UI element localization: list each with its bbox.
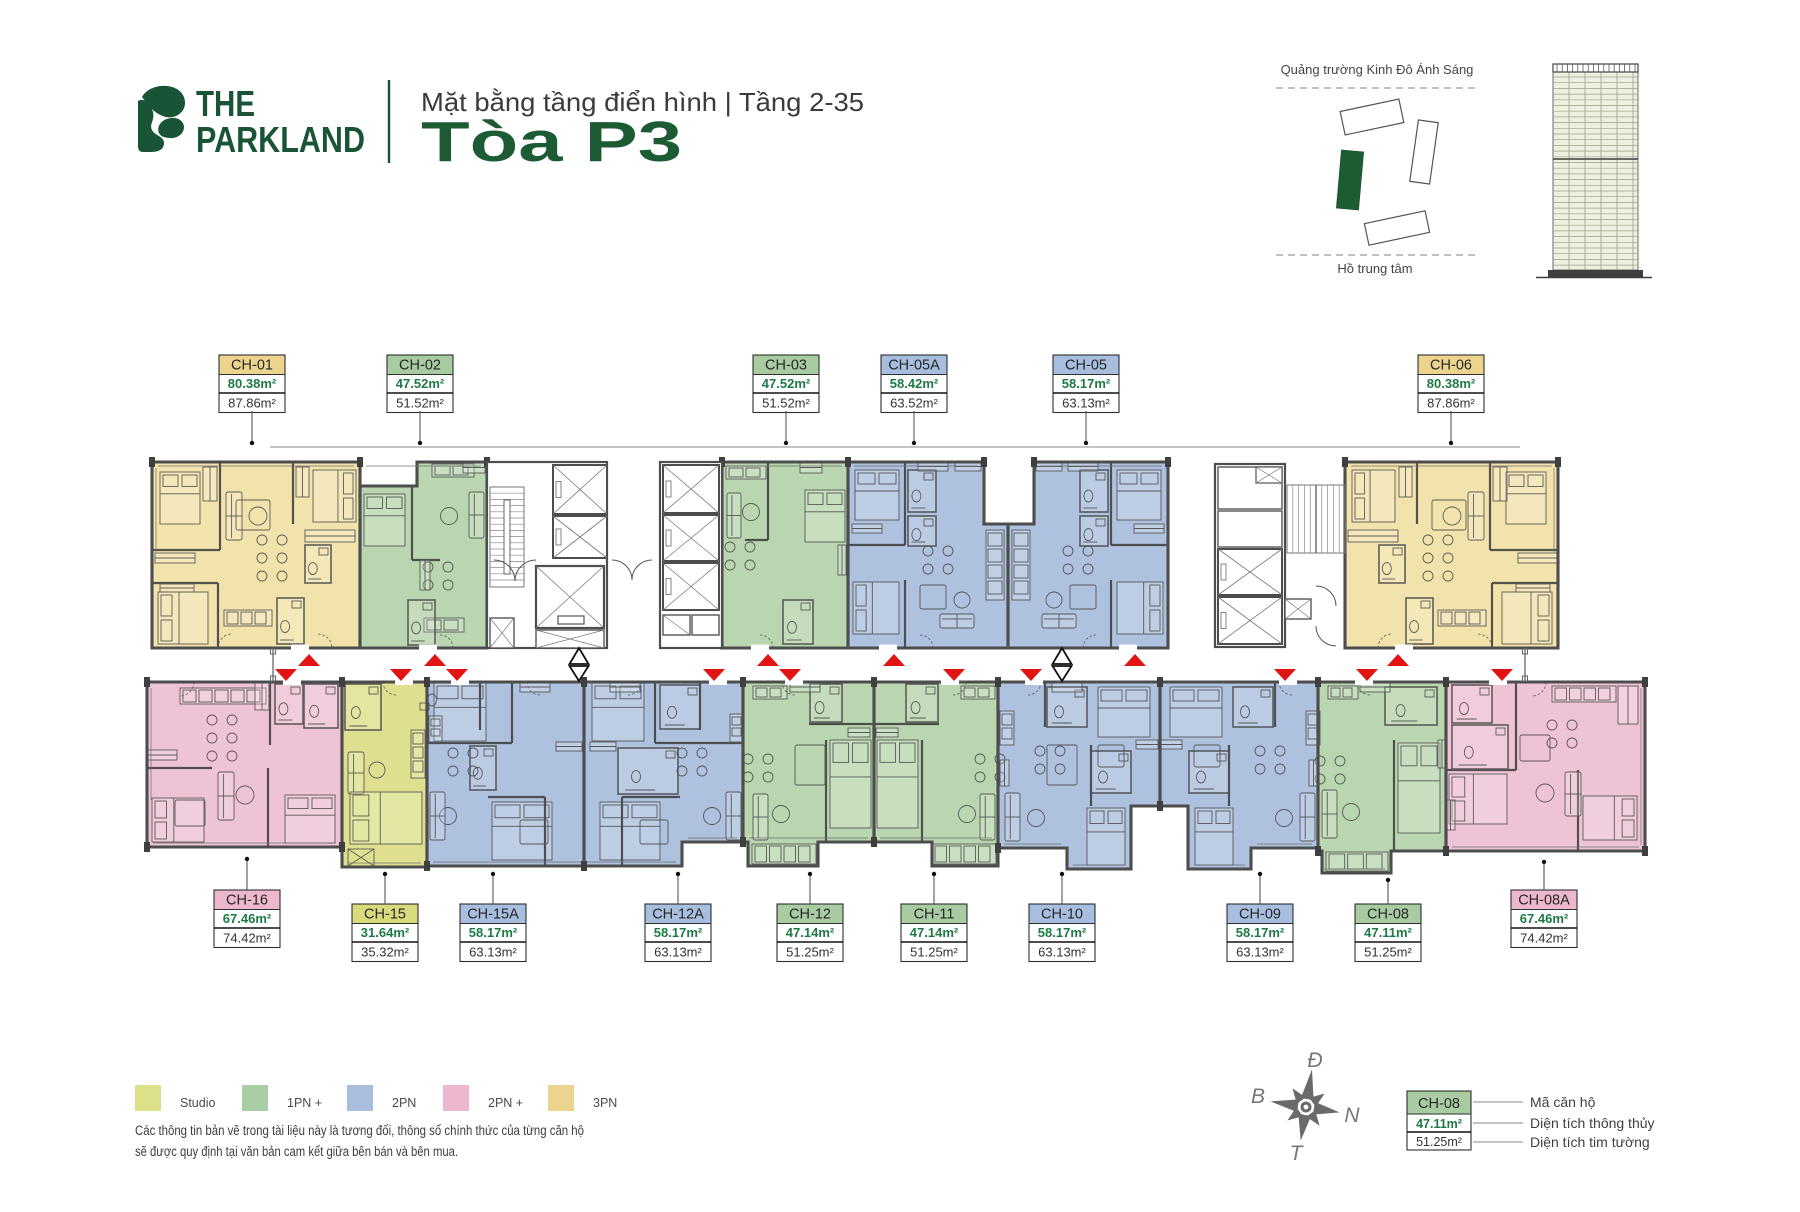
svg-text:CH-16: CH-16 (226, 892, 268, 908)
svg-text:31.64m²: 31.64m² (361, 925, 410, 940)
svg-text:87.86m²: 87.86m² (1427, 395, 1475, 410)
svg-text:Diện tích thông thủy: Diện tích thông thủy (1530, 1115, 1655, 1131)
svg-text:47.11m²: 47.11m² (1364, 925, 1412, 940)
svg-text:51.25m²: 51.25m² (786, 944, 834, 959)
svg-text:51.25m²: 51.25m² (910, 944, 958, 959)
svg-text:CH-11: CH-11 (914, 906, 955, 922)
svg-text:58.42m²: 58.42m² (890, 376, 939, 391)
svg-text:51.52m²: 51.52m² (762, 395, 810, 410)
svg-text:80.38m²: 80.38m² (1427, 376, 1476, 391)
svg-text:47.14m²: 47.14m² (910, 925, 959, 940)
svg-text:74.42m²: 74.42m² (223, 930, 271, 945)
svg-text:CH-01: CH-01 (231, 357, 273, 373)
svg-text:58.17m²: 58.17m² (654, 925, 703, 940)
svg-text:B: B (1251, 1085, 1265, 1108)
svg-text:Diện tích tim tường: Diện tích tim tường (1530, 1134, 1650, 1150)
svg-text:N: N (1344, 1104, 1360, 1127)
svg-text:CH-12: CH-12 (789, 906, 831, 922)
svg-text:2PN: 2PN (392, 1096, 416, 1110)
svg-text:58.17m²: 58.17m² (1236, 925, 1285, 940)
svg-text:CH-08: CH-08 (1418, 1096, 1460, 1112)
svg-text:Mã căn hộ: Mã căn hộ (1530, 1094, 1596, 1110)
svg-text:T: T (1290, 1142, 1305, 1165)
svg-text:74.42m²: 74.42m² (1520, 930, 1568, 945)
svg-text:CH-02: CH-02 (399, 357, 441, 373)
svg-text:63.13m²: 63.13m² (469, 944, 517, 959)
svg-text:58.17m²: 58.17m² (1062, 376, 1111, 391)
svg-text:sẽ được quy định tại văn bản c: sẽ được quy định tại văn bản cam kết giữ… (135, 1144, 458, 1159)
svg-text:47.14m²: 47.14m² (786, 925, 835, 940)
svg-text:CH-08: CH-08 (1367, 906, 1409, 922)
svg-text:PARKLAND: PARKLAND (196, 119, 365, 160)
svg-text:35.32m²: 35.32m² (361, 944, 409, 959)
svg-text:Hồ trung tâm: Hồ trung tâm (1337, 261, 1412, 276)
svg-text:Các thông tin bản vẽ trong tài: Các thông tin bản vẽ trong tài liệu này … (135, 1123, 584, 1138)
svg-text:CH-15A: CH-15A (467, 906, 519, 922)
svg-text:87.86m²: 87.86m² (228, 395, 276, 410)
svg-text:47.52m²: 47.52m² (762, 376, 811, 391)
svg-text:47.52m²: 47.52m² (396, 376, 445, 391)
svg-text:Tòa P3: Tòa P3 (421, 110, 682, 174)
svg-text:63.13m²: 63.13m² (1038, 944, 1086, 959)
svg-text:63.52m²: 63.52m² (890, 395, 938, 410)
svg-text:58.17m²: 58.17m² (1038, 925, 1087, 940)
svg-text:2PN +: 2PN + (488, 1096, 523, 1110)
svg-text:51.52m²: 51.52m² (396, 395, 444, 410)
svg-text:1PN +: 1PN + (287, 1096, 322, 1110)
svg-text:63.13m²: 63.13m² (1062, 395, 1110, 410)
svg-text:3PN: 3PN (593, 1096, 617, 1110)
svg-text:58.17m²: 58.17m² (469, 925, 518, 940)
svg-text:Đ: Đ (1307, 1049, 1322, 1072)
svg-text:51.25m²: 51.25m² (1416, 1135, 1462, 1149)
svg-text:67.46m²: 67.46m² (1520, 911, 1569, 926)
svg-text:63.13m²: 63.13m² (1236, 944, 1284, 959)
svg-text:CH-03: CH-03 (765, 357, 807, 373)
svg-text:Studio: Studio (180, 1096, 215, 1110)
svg-text:51.25m²: 51.25m² (1364, 944, 1412, 959)
svg-text:47.11m²: 47.11m² (1416, 1117, 1462, 1131)
svg-text:CH-06: CH-06 (1430, 357, 1472, 373)
svg-text:CH-08A: CH-08A (1518, 892, 1570, 908)
svg-text:CH-15: CH-15 (364, 906, 406, 922)
svg-text:CH-12A: CH-12A (652, 906, 704, 922)
svg-text:67.46m²: 67.46m² (223, 911, 272, 926)
svg-text:CH-09: CH-09 (1239, 906, 1281, 922)
svg-text:Quảng trường Kinh Đô Ánh Sáng: Quảng trường Kinh Đô Ánh Sáng (1281, 62, 1474, 77)
svg-text:80.38m²: 80.38m² (228, 376, 277, 391)
svg-text:THE: THE (196, 83, 255, 124)
svg-text:CH-10: CH-10 (1041, 906, 1083, 922)
svg-text:CH-05A: CH-05A (888, 357, 940, 373)
svg-text:63.13m²: 63.13m² (654, 944, 702, 959)
svg-text:CH-05: CH-05 (1065, 357, 1107, 373)
